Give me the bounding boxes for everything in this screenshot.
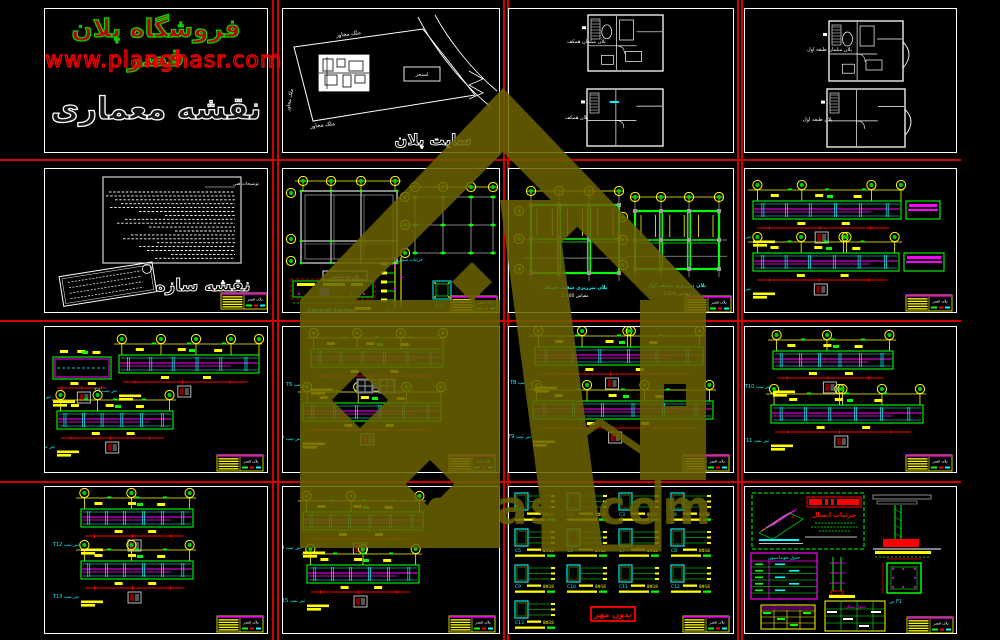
svg-text:جدول فونداسیون: جدول فونداسیون: [768, 556, 800, 561]
svg-text:8Φ18: 8Φ18: [543, 620, 554, 625]
connection-detail: جزئیات اتصال: [752, 493, 864, 549]
title-block: پلان قصر: [906, 295, 952, 311]
column-section: C38Φ18: [619, 493, 659, 521]
floor-plan: پلان مبلمان طبقه اول: [807, 21, 909, 81]
svg-text:پلان قصر: پلان قصر: [708, 459, 724, 464]
wall-footing-detail: [873, 495, 941, 557]
footing-detail: A-A: [433, 281, 451, 309]
title-block: پلان قصر: [449, 616, 495, 632]
foundation-table: جدول فونداسیون: [751, 553, 817, 599]
sheet-details: جزئیات اتصالجدول فونداسیونپی F1جدول میلگ…: [744, 486, 957, 634]
column-section: C118Φ18: [619, 565, 659, 593]
svg-text:سایت پلان: سایت پلان: [395, 131, 472, 150]
site-plan: استخرملک مجاورملک مجاورملک مجاورسایت پلا…: [285, 15, 497, 150]
title-block: پلان قصر: [683, 455, 729, 471]
column-section: C28Φ18: [567, 493, 607, 521]
beam-strip: تیر تیپ T15: [283, 544, 422, 610]
notes-block: توضیحات فنینقشه سازه: [103, 177, 260, 296]
column-section: C138Φ18: [515, 601, 555, 629]
svg-text:پلان طبقه اول: پلان طبقه اول: [803, 117, 833, 123]
svg-text:پلان همکف: پلان همکف: [565, 115, 589, 121]
sheet-beams-1: تیر تیپ T1تیر تیپ T2پلان قصر: [744, 168, 957, 313]
svg-text:ملک مجاور: ملک مجاور: [285, 88, 295, 113]
svg-text:بدون مهر: بدون مهر: [593, 610, 631, 619]
rebar-table-large: جدول میلگرد: [825, 601, 885, 631]
svg-text:پلان قصر: پلان قصر: [242, 620, 258, 625]
svg-text:C9: C9: [515, 584, 521, 590]
svg-text:تیر تیپ T14: تیر تیپ T14: [283, 545, 302, 551]
svg-text:ملک مجاور: ملک مجاور: [335, 29, 362, 39]
svg-text:پلان تیرریزی سقف همکف: پلان تیرریزی سقف همکف: [543, 285, 608, 291]
column-section: C128Φ18: [671, 565, 711, 593]
title-block: پلان قصر: [217, 455, 263, 471]
svg-text:C12: C12: [671, 584, 680, 590]
svg-text:پلان قصر: پلان قصر: [932, 621, 948, 626]
svg-text:پلان قصر: پلان قصر: [708, 620, 724, 625]
svg-text:8Φ18: 8Φ18: [647, 548, 658, 553]
svg-text:8Φ18: 8Φ18: [647, 512, 658, 517]
beam-section: General Section: [291, 279, 375, 314]
column-section: C88Φ18: [671, 529, 711, 557]
svg-text:پلان قصر: پلان قصر: [474, 620, 490, 625]
svg-text:C3: C3: [619, 512, 625, 518]
framing-plan: پلان تیرریزی سقف همکفمقیاس 1:100: [514, 186, 627, 299]
beam-strip: تیر تیپ T10: [745, 330, 896, 396]
sheet-column-sections: C18Φ18C28Φ18C38Φ18C48Φ18C58Φ18C68Φ18C78Φ…: [508, 486, 734, 634]
sheet-framing: پلان تیرریزی سقف همکفمقیاس 1:100پلان تیر…: [508, 168, 734, 313]
framing-plan: پلان تیرریزی سقف اولمقیاس 1:100: [618, 192, 727, 297]
svg-text:General Section: General Section: [307, 308, 356, 314]
title-block: پلان قصر: [683, 616, 729, 632]
sheet-beams-7: تیر تیپ T14تیر تیپ T15پلان قصر: [282, 486, 500, 634]
svg-text:جزئیات اتصال: جزئیات اتصال: [812, 511, 857, 519]
website-url: www.planghasr.com: [45, 48, 267, 73]
svg-text:C4: C4: [671, 512, 677, 518]
sheet-beams-3: تیر تیپ T6تیر تیپ T7پلان قصر: [282, 326, 500, 473]
title-block: پلان قصر: [685, 296, 731, 312]
sheet-beams-6: تیر تیپ T12تیر تیپ T13پلان قصر: [44, 486, 268, 634]
beam-strip: تیر تیپ T11: [745, 384, 926, 450]
svg-text:پلان قصر: پلان قصر: [474, 459, 490, 464]
stamp-box: [59, 262, 157, 306]
column-section: C58Φ18: [515, 529, 555, 557]
no-stamp-box: بدون مهر: [591, 607, 635, 621]
svg-text:C5: C5: [515, 548, 521, 554]
svg-text:تیر تیپ T12: تیر تیپ T12: [52, 542, 80, 548]
floor-plan: پلان مبلمان همکف: [567, 15, 663, 71]
svg-text:تیر تیپ T9: تیر تیپ T9: [509, 434, 532, 440]
sheet-beams-4: تیر تیپ T8تیر تیپ T9پلان قصر: [508, 326, 734, 473]
architecture-caption: نقشه معماری: [45, 91, 267, 127]
svg-text:پلان تیرریزی سقف اول: پلان تیرریزی سقف اول: [648, 283, 706, 289]
svg-text:C6: C6: [567, 548, 573, 554]
rebar-table-small: [761, 605, 815, 629]
svg-text:پی F1: پی F1: [889, 599, 902, 605]
svg-text:پلان فونداسیون: پلان فونداسیون: [331, 275, 361, 280]
svg-text:8Φ18: 8Φ18: [595, 512, 606, 517]
isolated-footing-plan: پی F1: [883, 559, 921, 605]
sheet-structure-notes: توضیحات فنینقشه سازهپلان قصر: [44, 168, 268, 313]
beam-strip: تیر تیپ T9: [509, 380, 716, 446]
svg-text:پلان قصر: پلان قصر: [710, 300, 726, 305]
svg-text:8Φ18: 8Φ18: [543, 548, 554, 553]
column-detail: 1-1جزئیات ستون: [381, 257, 423, 314]
svg-text:C11: C11: [619, 584, 628, 590]
title-block: پلان قصر: [907, 617, 953, 633]
svg-text:تیر تیپ T1: تیر تیپ T1: [745, 234, 752, 240]
svg-text:8Φ18: 8Φ18: [699, 584, 710, 589]
svg-text:C8: C8: [671, 548, 677, 554]
title-block: پلان قصر: [906, 455, 952, 471]
svg-text:پلان قصر: پلان قصر: [931, 299, 947, 304]
beam-strip: تیر تیپ T5: [45, 390, 176, 456]
svg-text:پلان قصر: پلان قصر: [931, 459, 947, 464]
column-section: C68Φ18: [567, 529, 607, 557]
title-block: پلان قصر: [217, 616, 263, 632]
svg-text:تیر تیپ T7: تیر تیپ T7: [283, 436, 302, 442]
svg-text:پلان قصر: پلان قصر: [242, 459, 258, 464]
svg-text:8Φ18: 8Φ18: [595, 548, 606, 553]
beam-strip: تیر تیپ T2: [745, 232, 944, 298]
sheet-site-plan: استخرملک مجاورملک مجاورملک مجاورسایت پلا…: [282, 8, 500, 153]
beam-strip: تیر تیپ T12: [52, 488, 196, 554]
svg-text:8Φ18: 8Φ18: [699, 512, 710, 517]
separator-line: [0, 481, 961, 483]
beam-strip: تیر تیپ T4: [93, 334, 264, 400]
svg-text:تیر تیپ T3: تیر تیپ T3: [45, 394, 52, 400]
column-section: C108Φ18: [567, 565, 607, 593]
column-grid: [400, 182, 497, 257]
column-section: C78Φ18: [619, 529, 659, 557]
beam-strip: تیر تیپ T13: [52, 540, 196, 606]
svg-text:استخر: استخر: [414, 72, 428, 78]
svg-text:تیر تیپ T15: تیر تیپ T15: [283, 598, 306, 604]
svg-text:8Φ18: 8Φ18: [595, 584, 606, 589]
svg-text:تیر تیپ T13: تیر تیپ T13: [52, 594, 80, 600]
sheet-branding: فروشگاه پلان قصر www.planghasr.com نقشه …: [44, 8, 268, 153]
svg-text:A-A: A-A: [435, 303, 444, 309]
column-section: C18Φ18: [515, 493, 555, 521]
svg-text:تیر تیپ T11: تیر تیپ T11: [745, 438, 770, 444]
svg-text:جدول میلگرد: جدول میلگرد: [844, 604, 867, 609]
svg-text:8Φ18: 8Φ18: [647, 584, 658, 589]
floor-plan: پلان همکف: [565, 89, 663, 146]
floor-plan: پلان طبقه اول: [803, 89, 911, 147]
svg-text:8Φ18: 8Φ18: [699, 548, 710, 553]
svg-text:1-1: 1-1: [387, 309, 395, 314]
sheet-foundation: پلان فونداسیونGeneral Section1-1جزئیات س…: [282, 168, 500, 313]
separator-line: [0, 159, 961, 161]
svg-text:پلان مبلمان طبقه اول: پلان مبلمان طبقه اول: [807, 47, 852, 53]
svg-text:مقیاس 1:100: مقیاس 1:100: [561, 293, 589, 299]
beam-strip: تیر تیپ T14: [283, 491, 426, 557]
separator-line: [0, 320, 961, 322]
svg-text:پلان مبلمان همکف: پلان مبلمان همکف: [567, 39, 606, 45]
svg-text:تیر تیپ T10: تیر تیپ T10: [745, 384, 772, 390]
svg-text:پلان قصر: پلان قصر: [246, 297, 262, 302]
svg-text:تیر تیپ T2: تیر تیپ T2: [745, 286, 752, 292]
sheet-beams-5: تیر تیپ T10تیر تیپ T11پلان قصر: [744, 326, 957, 473]
svg-text:8Φ18: 8Φ18: [543, 512, 554, 517]
svg-text:توضیحات فنی: توضیحات فنی: [233, 182, 260, 187]
svg-text:C1: C1: [515, 512, 521, 518]
svg-text:8Φ18: 8Φ18: [543, 584, 554, 589]
title-block: پلان قصر: [449, 455, 495, 471]
sheet-beams-2: تیر تیپ T3تیر تیپ T4تیر تیپ T5پلان قصر: [44, 326, 268, 473]
svg-text:C10: C10: [567, 584, 576, 590]
svg-text:تیر تیپ T5: تیر تیپ T5: [45, 444, 56, 450]
svg-text:جزئیات ستون: جزئیات ستون: [397, 258, 423, 263]
column-elevation: [829, 557, 855, 598]
svg-text:C2: C2: [567, 512, 573, 518]
column-section: C98Φ18: [515, 565, 555, 593]
column-section: C48Φ18: [671, 493, 711, 521]
beam-strip: تیر تیپ T8: [509, 327, 706, 393]
svg-text:پلان قصر: پلان قصر: [476, 300, 492, 305]
svg-text:C7: C7: [619, 548, 625, 554]
svg-text:تیر تیپ T8: تیر تیپ T8: [509, 380, 534, 386]
svg-text:C13: C13: [515, 620, 524, 626]
sheet-floor-plans-first: پلان مبلمان طبقه اولپلان طبقه اول: [744, 8, 957, 153]
cad-sheet-grid: فروشگاه پلان قصر www.planghasr.com نقشه …: [0, 0, 1000, 640]
title-block: پلان قصر: [451, 296, 497, 312]
sheet-floor-plans-ground: پلان مبلمان همکفپلان همکف: [508, 8, 734, 153]
